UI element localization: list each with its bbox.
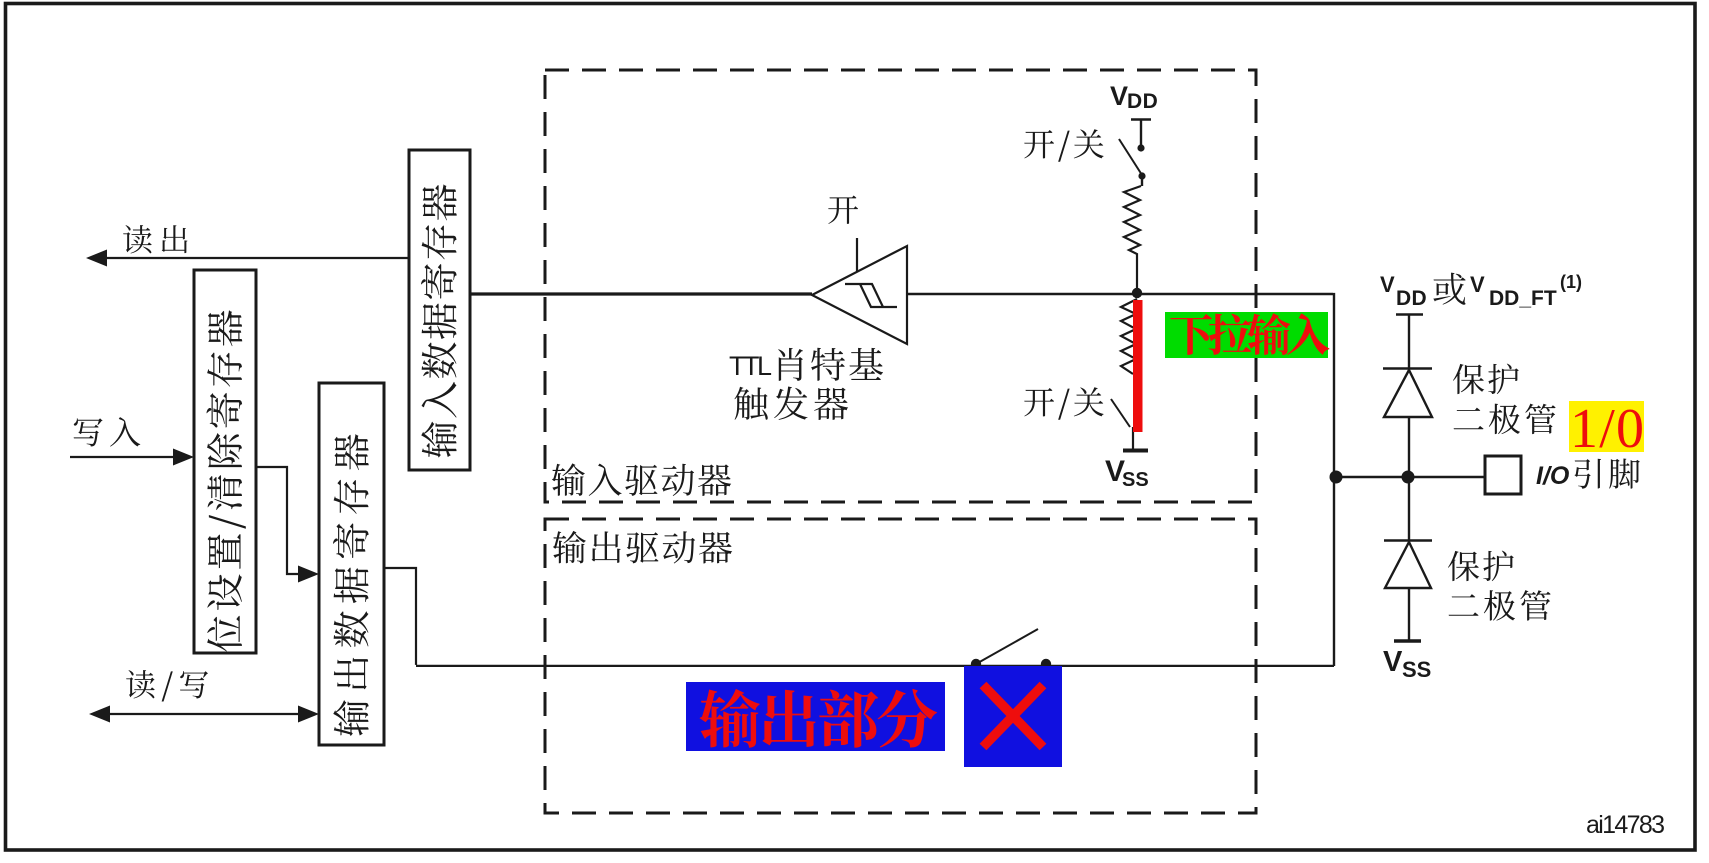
svg-text:ai14783: ai14783 (1586, 811, 1665, 839)
svg-text:V: V (1110, 81, 1128, 111)
svg-text:SS: SS (1122, 469, 1149, 491)
svg-text:DD: DD (1396, 287, 1427, 310)
svg-text:(1): (1) (1560, 272, 1582, 292)
svg-text:TTL: TTL (729, 351, 772, 381)
svg-text:SS: SS (1402, 657, 1431, 682)
svg-text:DD: DD (1127, 90, 1158, 113)
svg-text:V: V (1470, 272, 1485, 297)
svg-text:V: V (1380, 272, 1395, 297)
svg-text:I/O: I/O (1536, 462, 1570, 490)
svg-text:V: V (1383, 646, 1403, 678)
svg-text:1/0: 1/0 (1570, 398, 1644, 460)
svg-text:DD_FT: DD_FT (1489, 287, 1557, 310)
